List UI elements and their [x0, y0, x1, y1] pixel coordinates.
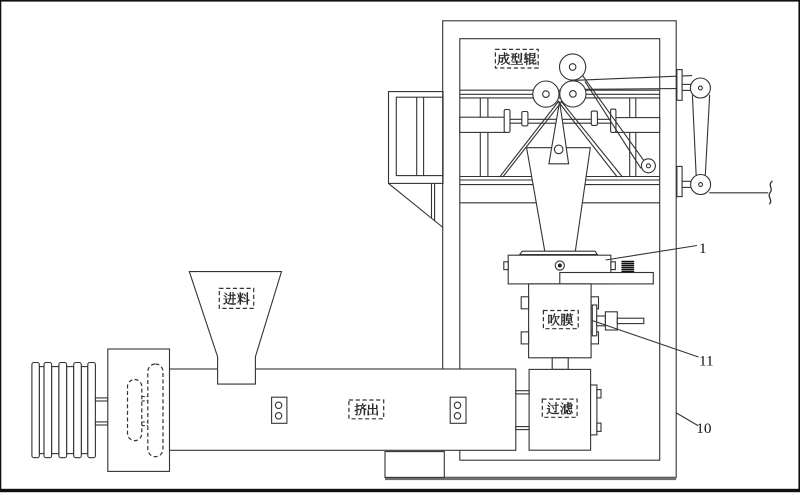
svg-text:11: 11 — [699, 352, 714, 369]
svg-text:1: 1 — [699, 240, 707, 257]
svg-text:10: 10 — [696, 420, 712, 437]
